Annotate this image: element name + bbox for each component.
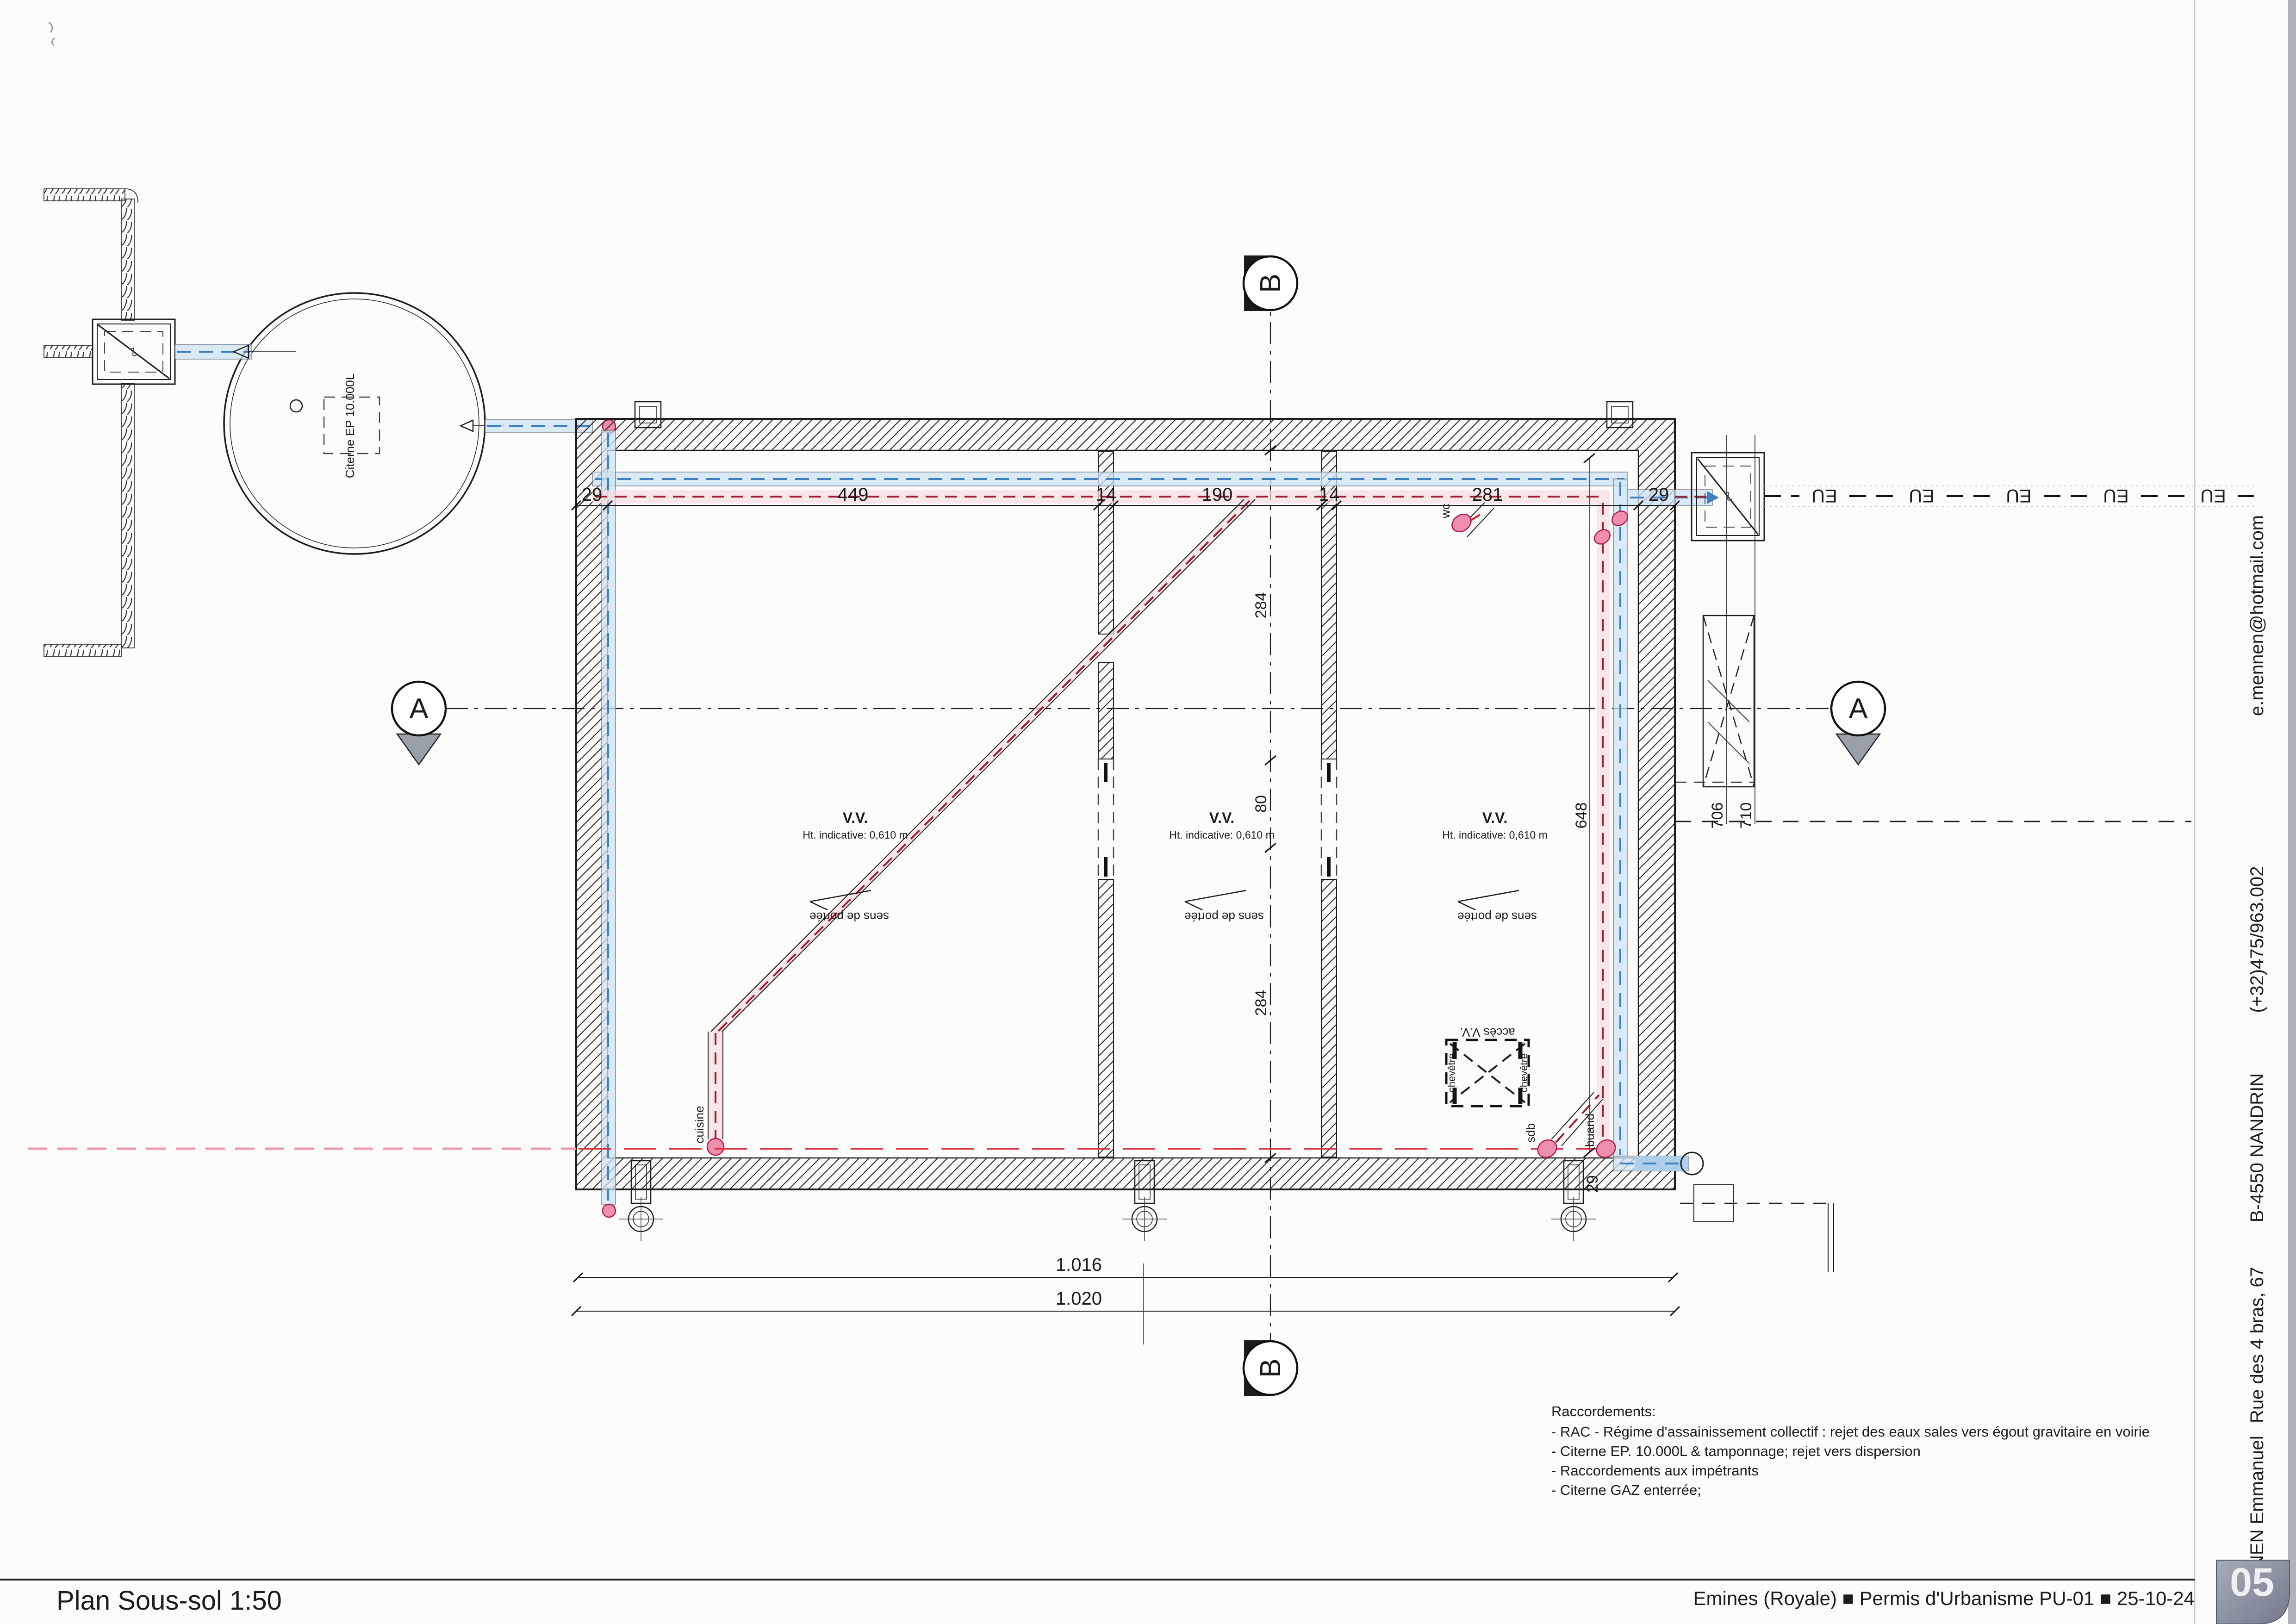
sidebar-street: Rue des 4 bras, 67 [2247,1267,2267,1423]
room-3-annotations: V.V. Ht. indicative: 0,610 m sens de por… [1442,809,1548,924]
section-marker-a-left: A [392,682,446,765]
span-direction-label: sens de portée [1184,910,1264,924]
section-marker-a-right: A [1831,682,1885,765]
room-height-note: Ht. indicative: 0,610 m [1169,829,1275,841]
bathroom-riser [1535,1137,1560,1161]
marker-letter: B [1255,274,1287,292]
room-height-note: Ht. indicative: 0,610 m [1442,829,1548,841]
note-line: - Citerne EP. 10.000L & tamponnage; reje… [1551,1443,1921,1459]
dim-room3: 281 [1472,485,1503,505]
dim-284-bottom: 284 [1252,990,1270,1016]
drawing-sheet: Citerne EP 10.000L [0,0,2296,1624]
dim-wall-left: 29 [582,485,603,505]
dim-80: 80 [1252,795,1270,813]
dim-648: 648 [1573,803,1590,829]
page-number-badge: 05 [2216,1560,2290,1624]
cistern-inlet [290,400,302,412]
site-vertical-dimensions: 706 710 [1709,435,1755,828]
partition-wall-1 [1098,451,1114,1157]
water-pipes [592,430,1719,1217]
sdb-label: sdb [1524,1123,1537,1143]
plan-walls [576,419,1675,1189]
buand-label: buand [1583,1114,1597,1147]
wall-thickness-dim: 29 [1584,1175,1601,1193]
crawlspace-access-hatch: accès V.V. chevêtre chevêtre [1446,1026,1530,1106]
pipe-riser [603,1204,616,1217]
section-marker-b-bottom: B [1244,1340,1297,1396]
section-marker-b-top: B [1244,255,1297,311]
dim-710: 710 [1737,803,1755,829]
sidebar-phone: (+32)475/963.002 [2247,866,2267,1013]
kitchen-label: cuisine [692,1106,706,1144]
raccordements-notes: Raccordements: - RAC - Régime d'assainis… [1551,1403,2150,1498]
chevetre-label-right: chevêtre [1518,1053,1530,1092]
page-number: 05 [2230,1560,2274,1605]
marker-letter: A [409,693,429,725]
dim-room2: 190 [1202,485,1233,505]
sidebar-email: e.mennen@hotmail.com [2247,515,2267,716]
marker-letter: A [1848,693,1868,725]
dispersion-bed [1703,616,1754,787]
note-line: - RAC - Régime d'assainissement collecti… [1551,1424,2150,1440]
eu-label: EU [2200,485,2226,506]
access-label: accès V.V. [1460,1026,1515,1039]
dim-706: 706 [1709,803,1726,829]
right-vertical-dimension: 648 [1573,454,1595,1157]
eu-sewer-line: EU EU EU EU EU [1764,485,2254,506]
inspection-chamber-1 [93,319,175,384]
page-edge-shadow [2288,0,2296,1624]
eu-label: EU [2103,485,2129,506]
room-title: V.V. [843,809,868,826]
flow-arrow-icon [1707,491,1719,504]
cistern-label: Citerne EP 10.000L [343,373,357,478]
dim-partition2: 14 [1319,485,1340,505]
drawing-title: Plan Sous-sol 1:50 [56,1586,282,1616]
chevetre-label-left: chevêtre [1446,1053,1457,1092]
sanitary-ducts: cuisine wc sdb buand [28,490,1712,1161]
partition-wall-2 [1321,451,1337,1157]
eu-label: EU [1811,485,1837,506]
rainwater-cistern: Citerne EP 10.000L [224,293,504,554]
marker-letter: B [1255,1358,1287,1377]
site-boundary-stub [1828,1203,1834,1272]
note-line: - Citerne GAZ enterrée; [1551,1482,1701,1498]
wc-duct: wc [1438,503,1494,537]
dim-1016: 1.016 [1056,1255,1102,1275]
eu-label: EU [1909,485,1935,506]
kitchen-riser [707,1139,724,1155]
span-direction-label: sens de portée [809,910,889,924]
room-height-note: Ht. indicative: 0,610 m [803,829,908,841]
bottom-dimension-lines: 1.016 1.020 [572,1255,1680,1344]
notes-heading: Raccordements: [1551,1403,1656,1419]
outlet-arrow-icon [460,420,473,431]
title-block-text: Emines (Royale) ■ Permis d'Urbanisme PU-… [1693,1587,2195,1609]
room-1-annotations: V.V. Ht. indicative: 0,610 m sens de por… [803,809,908,924]
sidebar-city: B-4550 NANDRIN [2247,1073,2267,1222]
sidebar-contact: e.mennen@hotmail.com (+32)475/963.002 B-… [2247,515,2267,1610]
room-title: V.V. [1209,809,1235,826]
outer-wall-line [576,419,1675,1189]
wc-label: wc [1438,504,1452,519]
scan-artifacts [49,22,55,45]
basement-plan-drawing: Citerne EP 10.000L [0,0,2296,1624]
dim-284-top: 284 [1252,592,1270,619]
hedge-lines [44,189,138,656]
dim-room1: 449 [838,485,869,505]
note-line: - Raccordements aux impétrants [1551,1462,1759,1479]
eu-label: EU [2006,485,2032,506]
room-title: V.V. [1482,809,1508,826]
span-direction-label: sens de portée [1457,910,1537,924]
inner-wall-line [608,450,1638,1158]
dim-wall-right: 29 [1649,485,1669,505]
room-2-annotations: V.V. Ht. indicative: 0,610 m sens de por… [1169,809,1275,924]
pipe-chamber-to-cistern [175,344,296,359]
dim-1020: 1.020 [1056,1288,1102,1309]
room2-vertical-dimensions: 284 80 284 [1252,446,1276,1163]
dim-partition1: 14 [1096,485,1117,505]
